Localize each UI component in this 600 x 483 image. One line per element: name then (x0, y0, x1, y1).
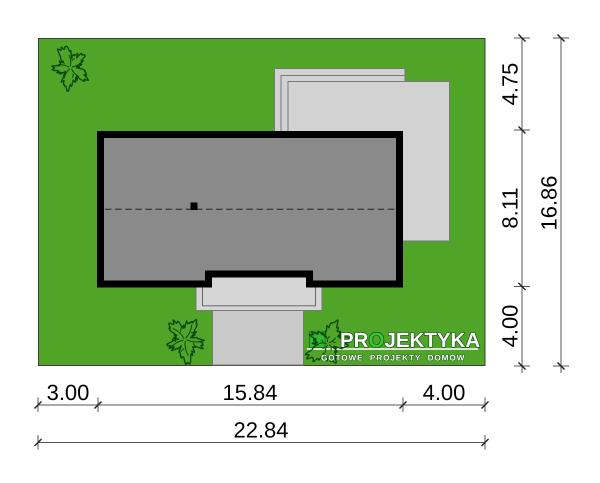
svg-text:8.11: 8.11 (498, 187, 523, 228)
svg-text:3.00: 3.00 (47, 380, 90, 405)
svg-text:4.75: 4.75 (498, 63, 523, 106)
svg-text:4.00: 4.00 (423, 380, 466, 405)
svg-text:15.84: 15.84 (222, 380, 277, 405)
svg-text:PROJEKTYKA: PROJEKTYKA (340, 329, 480, 352)
svg-text:22.84: 22.84 (233, 418, 288, 443)
svg-text:GOTOWE PROJEKTY DOMÓW: GOTOWE PROJEKTY DOMÓW (321, 353, 465, 363)
svg-text:16.86: 16.86 (537, 175, 562, 230)
svg-text:4.00: 4.00 (498, 305, 523, 348)
